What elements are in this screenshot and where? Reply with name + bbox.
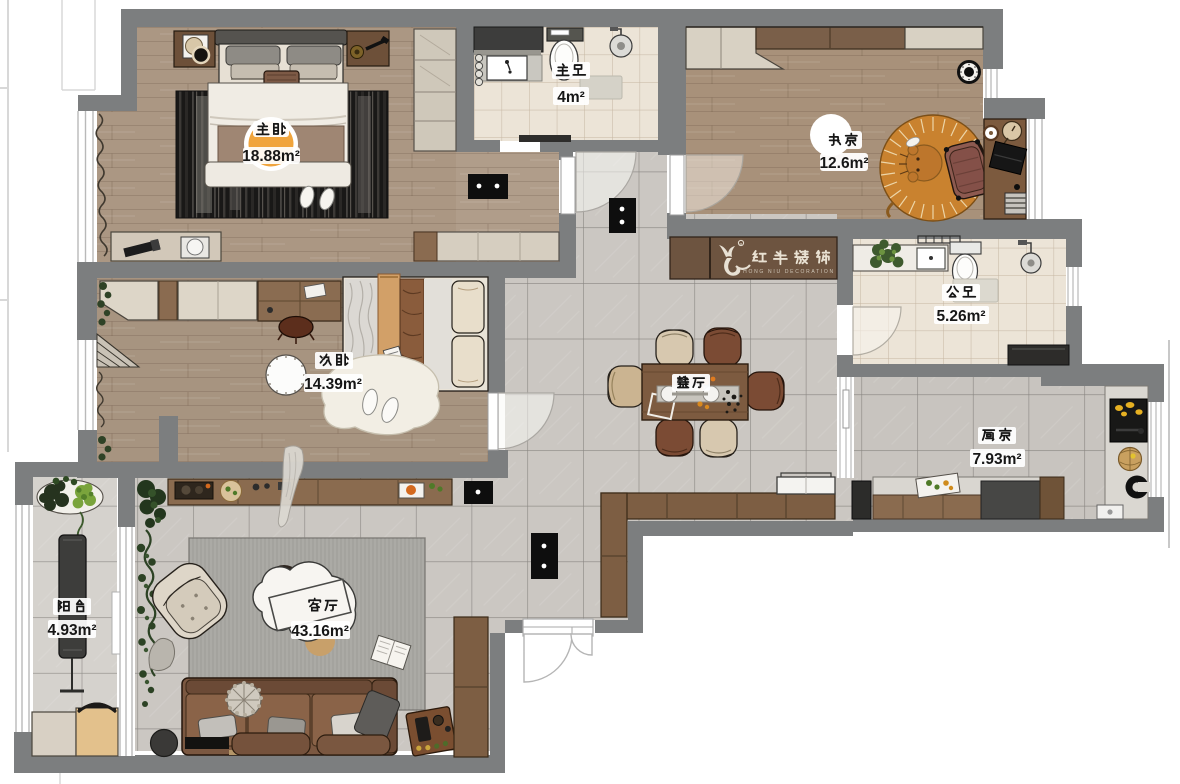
svg-text:7.93m²: 7.93m² bbox=[972, 451, 1021, 468]
svg-text:5.26m²: 5.26m² bbox=[936, 308, 985, 325]
svg-text:HONG NIU DECORATION: HONG NIU DECORATION bbox=[743, 269, 835, 275]
svg-text:4m²: 4m² bbox=[557, 89, 585, 106]
svg-text:12.6m²: 12.6m² bbox=[819, 155, 868, 172]
svg-text:14.39m²: 14.39m² bbox=[304, 376, 362, 393]
svg-text:18.88m²: 18.88m² bbox=[242, 148, 300, 165]
svg-text:4.93m²: 4.93m² bbox=[47, 622, 96, 639]
svg-text:R: R bbox=[740, 242, 743, 247]
svg-text:43.16m²: 43.16m² bbox=[291, 623, 349, 640]
